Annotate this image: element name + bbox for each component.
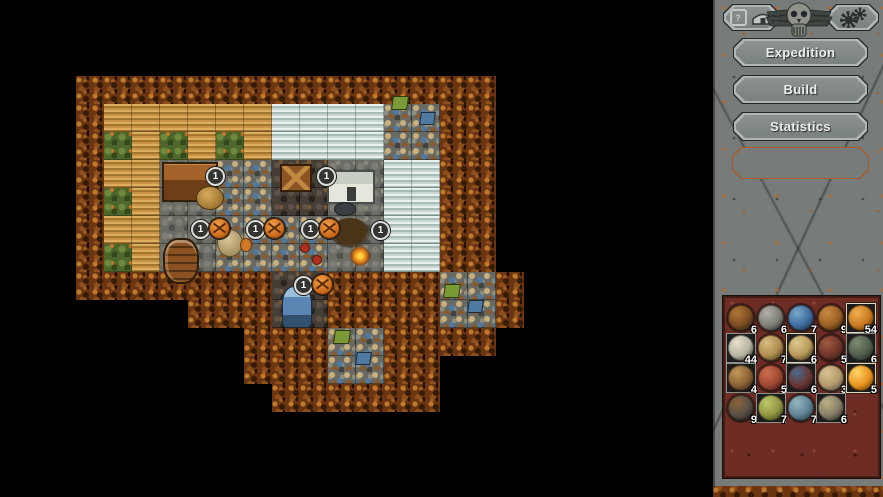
map-tile-ice[interactable]: [384, 160, 412, 188]
map-tile-ice[interactable]: [412, 216, 440, 244]
map-tile-bush[interactable]: [104, 132, 132, 160]
inventory-item-claw[interactable]: 4: [726, 363, 756, 393]
gear-icon: [838, 6, 868, 30]
map-tile-ice[interactable]: [300, 132, 328, 160]
map-tile-tree: [76, 76, 104, 104]
map-tile-wheat[interactable]: [132, 216, 160, 244]
barrel-decal: [163, 238, 199, 284]
map-tile-tree: [384, 384, 412, 412]
map-tile-tree: [440, 132, 468, 160]
map-tile-tree: [216, 300, 244, 328]
count-badge[interactable]: 1: [294, 276, 313, 295]
map-tile-tree: [412, 272, 440, 300]
count-badge[interactable]: 1: [206, 167, 225, 186]
inventory-item-blue-ore[interactable]: 7: [787, 304, 815, 332]
map-tile-tree: [216, 76, 244, 104]
map-tile-tree: [244, 300, 272, 328]
inventory-item-horn[interactable]: 5: [817, 334, 845, 362]
map-tile-tree: [272, 328, 300, 356]
map-tile-tree: [468, 132, 496, 160]
inventory-item-clay-ball[interactable]: 54: [846, 303, 876, 333]
count-badge[interactable]: 1: [191, 220, 210, 239]
map-tile-tree: [356, 300, 384, 328]
map-tile-tree: [300, 76, 328, 104]
map-tile-tree: [440, 328, 468, 356]
map-tile-tree: [188, 300, 216, 328]
build-label: Build: [784, 82, 818, 97]
map-tile-tree: [76, 132, 104, 160]
campfire-decal: [350, 246, 370, 266]
map-tile-tree: [440, 188, 468, 216]
map-tile-clutter[interactable]: [468, 272, 496, 300]
map-tile-ice[interactable]: [272, 132, 300, 160]
map-tile-tree: [356, 272, 384, 300]
map-tile-ice[interactable]: [356, 104, 384, 132]
map-tile-wheat[interactable]: [132, 188, 160, 216]
map-tile-tree: [76, 216, 104, 244]
inventory-item-beetle[interactable]: 6: [786, 363, 816, 393]
map-tile-tree: [468, 328, 496, 356]
map-tile-ice[interactable]: [412, 160, 440, 188]
map-tile-ice[interactable]: [384, 188, 412, 216]
skull-emblem: [763, 0, 835, 44]
hay-decal: [196, 186, 224, 210]
map-tile-ice[interactable]: [384, 244, 412, 272]
map-tile-tree: [244, 272, 272, 300]
map-tile-ice[interactable]: [272, 104, 300, 132]
map-tile-tree: [188, 76, 216, 104]
map-tile-tree: [384, 300, 412, 328]
map-tile-tree: [244, 356, 272, 384]
map-tile-wheat[interactable]: [160, 104, 188, 132]
inventory-item-hops[interactable]: 7: [756, 393, 786, 423]
map-tile-tree: [412, 76, 440, 104]
map-tile-tree: [132, 76, 160, 104]
map-tile-wheat[interactable]: [244, 104, 272, 132]
count-badge[interactable]: 1: [317, 167, 336, 186]
settings-button-face: [830, 7, 876, 28]
map-tile-clutter[interactable]: [244, 160, 272, 188]
map-tile-tree: [272, 76, 300, 104]
flagblue-decal: [467, 300, 484, 313]
map-tile-tree: [76, 104, 104, 132]
map-tile-tree: [468, 188, 496, 216]
map-tile-tree: [104, 272, 132, 300]
map-tile-wheat[interactable]: [188, 132, 216, 160]
dot-decal: [300, 243, 310, 253]
inventory-item-stone[interactable]: 6: [757, 304, 785, 332]
map-tile-tree: [328, 76, 356, 104]
expedition-face: Expedition: [736, 41, 865, 64]
sidebar-panel: ?: [710, 0, 883, 497]
inventory-item-tools[interactable]: 6: [846, 333, 876, 363]
map-tile-clutter[interactable]: [440, 300, 468, 328]
flaggreen-decal: [443, 284, 461, 298]
map-tile-wheat[interactable]: [132, 244, 160, 272]
map-tile-clutter[interactable]: [244, 188, 272, 216]
map-tile-tree: [468, 104, 496, 132]
item-count: 6: [841, 414, 847, 426]
map-tile-wheat[interactable]: [132, 132, 160, 160]
statistics-face: Statistics: [736, 115, 865, 138]
inventory-item-shell[interactable]: 7: [787, 394, 815, 422]
build-face: Build: [736, 78, 865, 101]
worker-badge[interactable]: [312, 274, 333, 295]
map-tile-ice[interactable]: [412, 244, 440, 272]
item-count: 5: [871, 384, 877, 396]
map-tile-wheat[interactable]: [104, 160, 132, 188]
inventory-item-gear[interactable]: 6: [816, 393, 846, 423]
inventory-item-bone-club[interactable]: 3: [817, 364, 845, 392]
dot-decal: [240, 238, 252, 252]
map-tile-wheat[interactable]: [132, 160, 160, 188]
map-tile-tree: [412, 300, 440, 328]
build-button[interactable]: Build: [733, 75, 868, 104]
map-tile-tree: [244, 328, 272, 356]
map-tile-wheat[interactable]: [244, 132, 272, 160]
map-tile-tree: [132, 272, 160, 300]
map-tile-tree: [468, 244, 496, 272]
map-tile-tree: [300, 328, 328, 356]
worker-badge[interactable]: [264, 218, 285, 239]
map-tile-wheat[interactable]: [104, 216, 132, 244]
map-tile-clutter[interactable]: [272, 244, 300, 272]
map-tile-tree: [440, 216, 468, 244]
map-tile-bush[interactable]: [216, 132, 244, 160]
map-tile-tree: [356, 76, 384, 104]
map-tile-bush[interactable]: [104, 244, 132, 272]
flagblue-decal: [419, 112, 436, 125]
empty-menu-slot: [732, 147, 869, 179]
map-tile-ice[interactable]: [328, 104, 356, 132]
map-tile-tree: [384, 328, 412, 356]
map-tile-tree: [76, 188, 104, 216]
map-tile-tree: [272, 356, 300, 384]
world-map[interactable]: 1111111: [76, 76, 524, 412]
map-tile-tree: [272, 384, 300, 412]
map-tile-tree: [300, 384, 328, 412]
map-tile-tree: [468, 76, 496, 104]
flaggreen-decal: [333, 330, 351, 344]
map-tile-tree: [76, 244, 104, 272]
map-tile-bush[interactable]: [104, 188, 132, 216]
map-tile-tree: [412, 328, 440, 356]
game-screen: 1111111 ?: [0, 0, 883, 497]
dot-decal: [334, 202, 356, 216]
map-tile-tree: [328, 300, 356, 328]
map-tile-dark[interactable]: [300, 188, 328, 216]
map-tile-tree: [356, 384, 384, 412]
map-tile-tree: [440, 104, 468, 132]
map-tile-tree: [76, 160, 104, 188]
map-tile-tree: [440, 76, 468, 104]
crate-decal: [280, 164, 312, 192]
inventory-item-scroll[interactable]: 6: [786, 333, 816, 363]
map-tile-clutter[interactable]: [412, 132, 440, 160]
map-tile-wheat[interactable]: [104, 104, 132, 132]
inventory-item-meat[interactable]: 5: [757, 364, 785, 392]
inventory-item-twigs[interactable]: 6: [727, 304, 755, 332]
map-tile-tree: [76, 272, 104, 300]
count-badge[interactable]: 1: [371, 221, 390, 240]
map-tile-tree: [496, 272, 524, 300]
statistics-button[interactable]: Statistics: [733, 112, 868, 141]
map-tile-wheat[interactable]: [132, 104, 160, 132]
map-tile-tree: [440, 244, 468, 272]
map-tile-tree: [412, 384, 440, 412]
inventory-item-hide[interactable]: 7: [757, 334, 785, 362]
worker-badge[interactable]: [209, 218, 230, 239]
statistics-label: Statistics: [770, 119, 831, 134]
dot-decal: [312, 255, 322, 265]
map-tile-clutter[interactable]: [384, 132, 412, 160]
map-tile-wheat[interactable]: [188, 104, 216, 132]
map-tile-tree: [440, 160, 468, 188]
map-tile-tree: [328, 384, 356, 412]
inventory-item-amber[interactable]: 5: [846, 363, 876, 393]
expedition-label: Expedition: [766, 45, 835, 60]
map-tile-bush[interactable]: [160, 132, 188, 160]
map-tile-clutter[interactable]: [328, 356, 356, 384]
flaggreen-decal: [391, 96, 409, 110]
map-tile-tree: [468, 216, 496, 244]
worker-badge[interactable]: [319, 218, 340, 239]
map-tile-tree: [496, 300, 524, 328]
map-tile-tree: [412, 356, 440, 384]
map-tile-tree: [384, 272, 412, 300]
map-tile-ice[interactable]: [356, 132, 384, 160]
map-tile-tree: [160, 76, 188, 104]
map-tile-wheat[interactable]: [216, 104, 244, 132]
map-tile-tree: [216, 272, 244, 300]
inventory-item-skull[interactable]: 44: [726, 333, 756, 363]
trees-strip: [713, 486, 883, 497]
map-tile-tree: [104, 76, 132, 104]
map-tile-ice[interactable]: [300, 104, 328, 132]
map-tile-tree: [384, 356, 412, 384]
map-tile-ice[interactable]: [328, 132, 356, 160]
map-tile-tree: [244, 76, 272, 104]
map-tile-tree: [300, 356, 328, 384]
count-badge[interactable]: 1: [301, 220, 320, 239]
map-tile-ice[interactable]: [412, 188, 440, 216]
inventory-item-coal[interactable]: 9: [727, 394, 755, 422]
count-badge[interactable]: 1: [246, 220, 265, 239]
question-icon: ?: [730, 9, 747, 26]
inventory-item-roots[interactable]: 9: [817, 304, 845, 332]
flagblue-decal: [355, 352, 372, 365]
map-tile-tree: [468, 160, 496, 188]
map-tile-dark[interactable]: [272, 188, 300, 216]
